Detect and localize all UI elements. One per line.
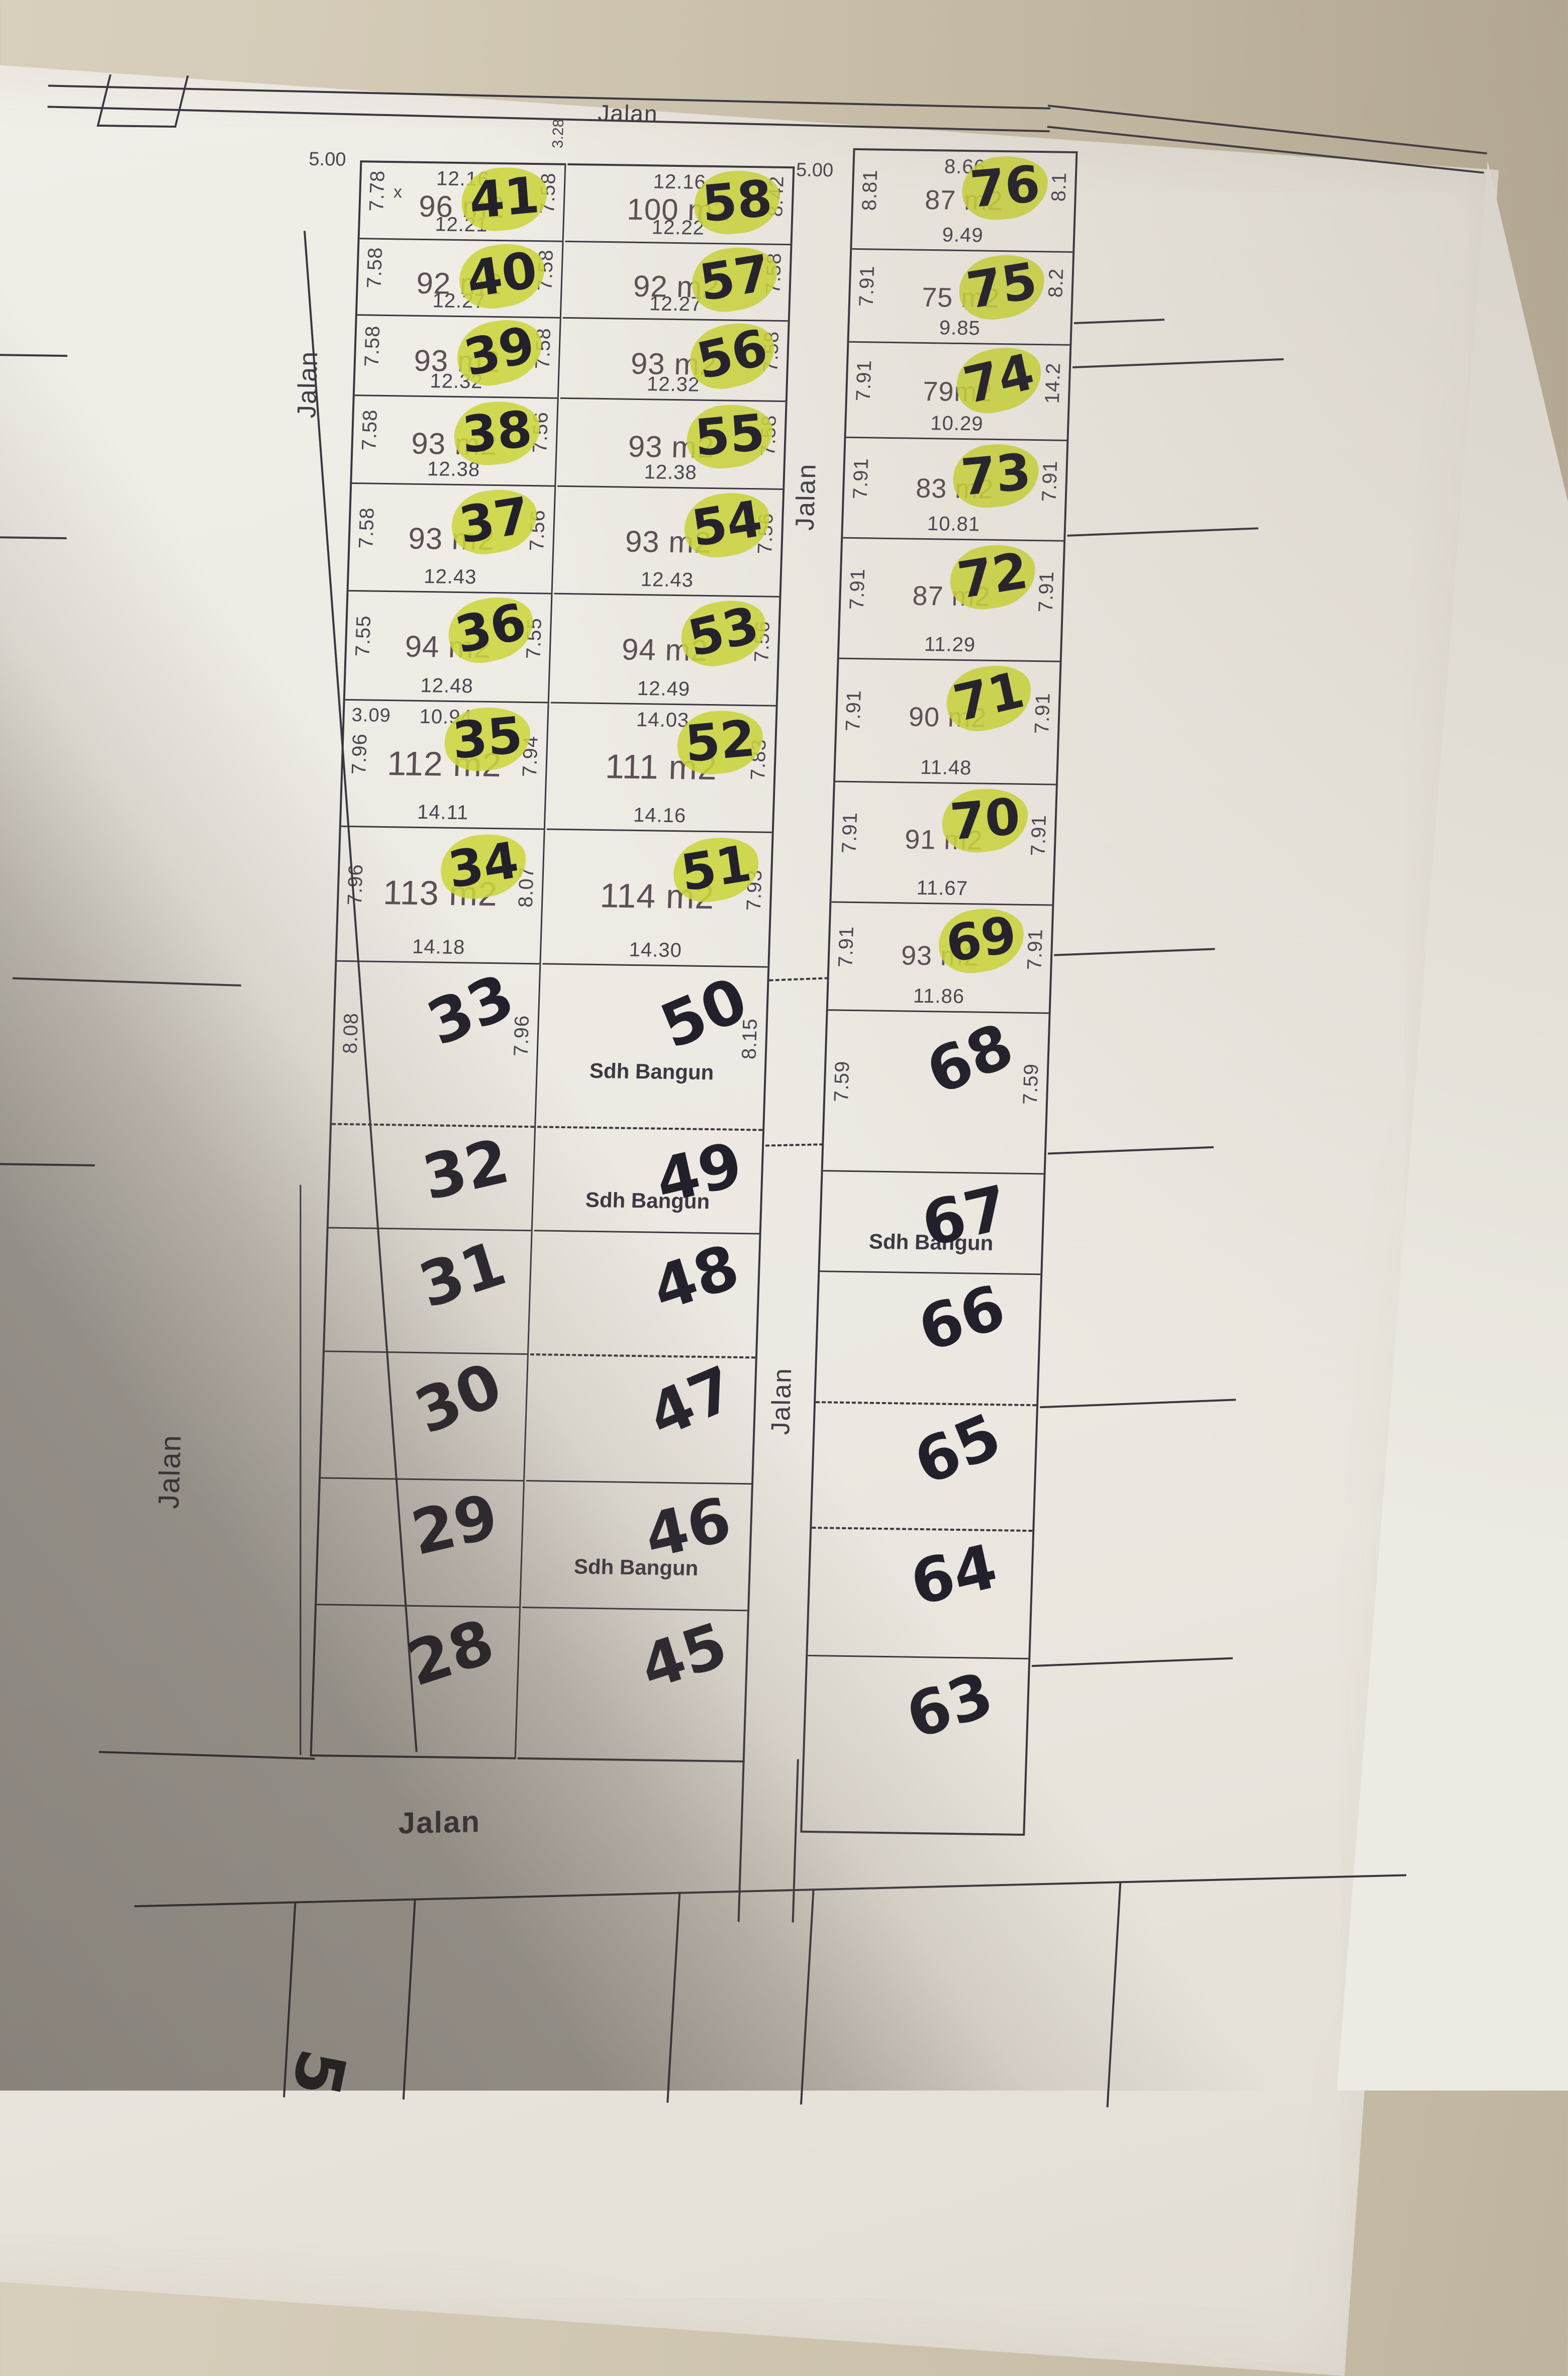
site-plan-drawing: Jalan 5.00 5.00 3.28 4196 m212.1612.217.…: [0, 0, 1568, 2111]
plot-52: 52111 m214.0314.167.83: [547, 702, 776, 832]
plot-dim-left: 7.91: [849, 457, 873, 499]
plot-number-handwritten: 31: [403, 1224, 522, 1327]
plot-number-handwritten: 70: [940, 785, 1030, 856]
plot-66: 66: [816, 1270, 1040, 1404]
right-tick: [1072, 358, 1284, 368]
plot-number-handwritten: 34: [436, 828, 530, 904]
top-road-line: [1048, 105, 1487, 154]
left-road-label: Jalan: [291, 350, 324, 418]
offplan-line: [13, 977, 241, 986]
plot-number-handwritten: 41: [459, 164, 549, 234]
top-road-line: [48, 106, 1050, 132]
number-text: 48: [636, 1227, 755, 1330]
bottom-parcel-line: [666, 1892, 680, 2103]
plot-dim-left: 8.08: [339, 1012, 363, 1053]
plot-69: 6993 m211.867.917.91: [828, 901, 1052, 1012]
plot-number-handwritten: 32: [409, 1122, 524, 1219]
road-crossing-dashed: [765, 1143, 823, 1146]
bottom-partial-glyph: 5: [276, 2043, 360, 2102]
number-text: 32: [409, 1122, 524, 1219]
plot-number-handwritten: 76: [960, 152, 1050, 223]
road-width-label: 5.00: [309, 149, 346, 171]
plot-dim-left: 7.59: [830, 1060, 854, 1102]
plot-57: 5792 m212.277.58: [563, 241, 791, 320]
plot-dim-left: 7.91: [852, 359, 876, 401]
plot-76: 7687 m28.669.498.818.1: [852, 150, 1075, 251]
plot-number-handwritten: 68: [909, 1006, 1031, 1115]
plot-dim-left: 7.58: [358, 409, 382, 450]
x-mark: x: [393, 182, 402, 202]
bottom-parcel-line: [403, 1899, 416, 2100]
plot-number-handwritten: 73: [951, 440, 1041, 511]
plot-47: 47: [526, 1353, 755, 1483]
plot-34: 34113 m214.187.968.07: [337, 826, 543, 963]
plot-dim-left: 7.91: [846, 568, 870, 609]
top-road-line: [48, 84, 1050, 109]
plot-39: 3993 m212.327.587.58: [355, 314, 560, 398]
highlight-mark: 70: [940, 785, 1030, 856]
highlight-mark: 35: [442, 704, 533, 774]
plot-65: 65: [812, 1401, 1036, 1530]
plot-dim-corner: 3.09: [351, 705, 391, 727]
plot-number-handwritten: 48: [636, 1227, 755, 1330]
plot-41: 4196 m212.1612.217.787.58x: [360, 162, 565, 241]
plot-dim-bottom: 12.49: [551, 676, 776, 702]
plot-dim-bottom: 12.43: [554, 567, 780, 593]
number-text: 45: [624, 1606, 743, 1709]
plot-number-handwritten: 55: [685, 401, 775, 471]
offplan-line: [0, 1162, 95, 1166]
left-road-curb: [300, 1185, 301, 1755]
bottom-road-label: Jalan: [398, 1804, 480, 1840]
plot-number-handwritten: 47: [631, 1348, 753, 1457]
plot-49: 49Sdh Bangun: [534, 1126, 762, 1233]
plot-dim-left: 7.58: [361, 325, 385, 366]
road-width-label: 5.00: [796, 159, 833, 181]
plot-dim-left: 7.96: [344, 863, 368, 905]
plot-number-handwritten: 51: [669, 831, 763, 907]
plot-68: 687.597.59: [823, 1009, 1049, 1173]
plot-56: 5693 m212.327.58: [560, 317, 788, 401]
plot-36: 3694 m212.487.557.55: [345, 590, 551, 702]
plot-dim-bottom: 9.49: [852, 223, 1073, 248]
plot-dim-left: 7.78: [365, 170, 389, 211]
right-tick: [1032, 1657, 1233, 1667]
road-crossing-dashed: [769, 977, 829, 981]
plot-dim-bottom: 12.48: [345, 673, 548, 699]
right-tick: [1040, 1399, 1236, 1408]
plot-75: 7575 m29.857.918.2: [849, 248, 1073, 344]
plot-55: 5593 m212.387.58: [557, 398, 785, 488]
plot-dim-left: 7.58: [355, 507, 379, 548]
top-road-line: [1047, 126, 1484, 173]
bottom-parcel-line: [800, 1889, 815, 2105]
plot-54: 5493 m212.437.56: [554, 485, 783, 596]
plot-31: 31: [325, 1227, 531, 1354]
plot-number-handwritten: 58: [692, 167, 782, 237]
plot-58: 58100 m212.1612.228.42: [565, 165, 793, 244]
right-tick: [1054, 948, 1215, 956]
plot-dim-bottom: 11.86: [828, 983, 1049, 1009]
plot-64: 64: [808, 1527, 1032, 1658]
plot-number-handwritten: 65: [897, 1396, 1019, 1505]
right-tick: [1067, 527, 1258, 537]
plot-71: 7190 m211.487.917.91: [835, 658, 1060, 784]
plot-dim-bottom: 10.81: [843, 512, 1064, 537]
plot-53: 5394 m212.497.56: [551, 593, 779, 705]
plot-number-handwritten: 66: [902, 1268, 1021, 1371]
plot-number-handwritten: 52: [675, 707, 765, 777]
highlight-mark: 76: [960, 152, 1050, 223]
plot-38: 3893 m212.387.587.56: [352, 394, 557, 485]
plot-74: 7479m210.297.9114.2: [846, 341, 1070, 440]
plot-dim-right: 8.2: [1044, 268, 1068, 298]
plot-29: 29: [317, 1477, 523, 1607]
plot-number-handwritten: 30: [398, 1344, 520, 1453]
plot-dim-bottom: 11.29: [839, 632, 1060, 658]
plot-number-handwritten: 28: [391, 1602, 510, 1705]
highlight-mark: 55: [685, 401, 775, 471]
photo-of-site-plan: { "photo": { "wall_color": "#cbc1ab", "p…: [0, 0, 1568, 2091]
plot-dim-bottom: 10.29: [846, 411, 1067, 437]
number-text: 63: [890, 1655, 1009, 1758]
plot-48: 48: [530, 1230, 759, 1356]
plot-dim-left: 7.91: [855, 265, 879, 307]
plot-dim-right: 7.91: [1038, 460, 1062, 502]
middle-road-label: Jalan: [765, 1367, 798, 1435]
plot-dim-bottom: 9.85: [849, 316, 1070, 341]
plot-40: 4092 m212.277.587.58: [357, 238, 562, 317]
plot-70: 7091 m211.677.917.91: [831, 780, 1055, 904]
middle-road-label: Jalan: [790, 463, 822, 531]
plot-column-middle: 58100 m212.1612.228.425792 m212.277.5856…: [518, 163, 795, 1762]
plot-built-note: Sdh Bangun: [539, 1058, 764, 1085]
plot-46: 46Sdh Bangun: [522, 1480, 751, 1610]
plot-dim-left: 7.91: [838, 812, 862, 853]
plot-column-right: 7687 m28.669.498.818.17575 m29.857.918.2…: [800, 148, 1077, 1836]
plot-dim-bottom: 14.18: [337, 935, 540, 960]
plot-51: 51114 m214.307.93: [542, 828, 771, 966]
left-road-label: Jalan: [152, 1434, 188, 1510]
offplan-line: [0, 354, 67, 357]
plot-dim-bottom: 14.11: [341, 800, 544, 826]
plot-number-handwritten: 63: [890, 1655, 1009, 1758]
plot-dim-bottom: 14.16: [547, 803, 772, 829]
highlight-mark: 73: [951, 440, 1041, 511]
plot-dim-bottom: 11.67: [832, 875, 1053, 901]
plot-dim-bottom: 12.43: [349, 564, 552, 590]
middle-road-stub: [738, 1758, 799, 1922]
plot-37: 3793 m212.437.587.56: [349, 482, 555, 593]
plot-dim-left: 7.91: [842, 690, 866, 731]
number-text: 65: [897, 1396, 1019, 1505]
plot-dim-left: 7.96: [348, 733, 372, 774]
right-tick: [1074, 319, 1164, 324]
plot-30: 30: [321, 1350, 527, 1480]
plot-number-handwritten: 64: [896, 1528, 1011, 1624]
plot-dim-bottom: 14.30: [543, 937, 768, 963]
plot-dim-bottom: 11.48: [835, 755, 1056, 781]
number-text: 29: [398, 1477, 513, 1574]
highlight-mark: 38: [452, 398, 542, 468]
number-text: 47: [631, 1348, 753, 1457]
number-text: 66: [902, 1268, 1021, 1371]
right-tick: [1048, 1146, 1214, 1155]
number-text: 68: [909, 1006, 1031, 1115]
highlight-mark: 58: [692, 167, 782, 237]
plot-dim-left: 7.58: [363, 247, 387, 288]
plot-dim-left: 7.55: [351, 615, 375, 656]
plot-dim-left: 7.91: [834, 926, 858, 967]
number-text: 30: [398, 1344, 520, 1453]
plot-45: 45: [518, 1607, 747, 1760]
number-text: 31: [403, 1224, 522, 1327]
plot-number-handwritten: 38: [452, 398, 542, 468]
plot-35: 35112 m210.943.0914.117.967.94: [341, 699, 548, 829]
number-text: 28: [391, 1602, 510, 1705]
highlight-mark: 52: [675, 707, 765, 777]
highlight-mark: 51: [669, 831, 763, 907]
plot-72: 7287 m211.297.917.91: [839, 537, 1063, 661]
bottom-road-top-edge: [99, 1751, 315, 1760]
plot-63: 63: [802, 1655, 1028, 1834]
plot-32: 32: [329, 1123, 534, 1230]
plot-67: 67Sdh Bangun: [820, 1170, 1043, 1273]
plot-number-handwritten: 29: [398, 1477, 513, 1574]
top-road-label: Jalan: [598, 100, 659, 128]
plot-number-handwritten: 45: [624, 1606, 743, 1709]
divider-top-dim: 3.28: [549, 119, 567, 148]
plot-73: 7383 m210.817.917.91: [843, 437, 1066, 540]
offplan-line: [0, 536, 67, 539]
plot-50: 50Sdh Bangun8.15: [537, 963, 767, 1129]
plot-number-handwritten: 35: [442, 704, 533, 774]
plot-dim-right: 8.1: [1047, 172, 1071, 202]
highlight-mark: 41: [459, 164, 549, 234]
offplan-parcel: [96, 74, 188, 128]
plot-dim-right: 7.91: [1027, 814, 1051, 855]
highlight-mark: 34: [436, 828, 530, 904]
plot-dim-left: 8.81: [858, 169, 883, 211]
bottom-parcel-line: [1107, 1882, 1122, 2108]
number-text: 64: [896, 1528, 1011, 1624]
